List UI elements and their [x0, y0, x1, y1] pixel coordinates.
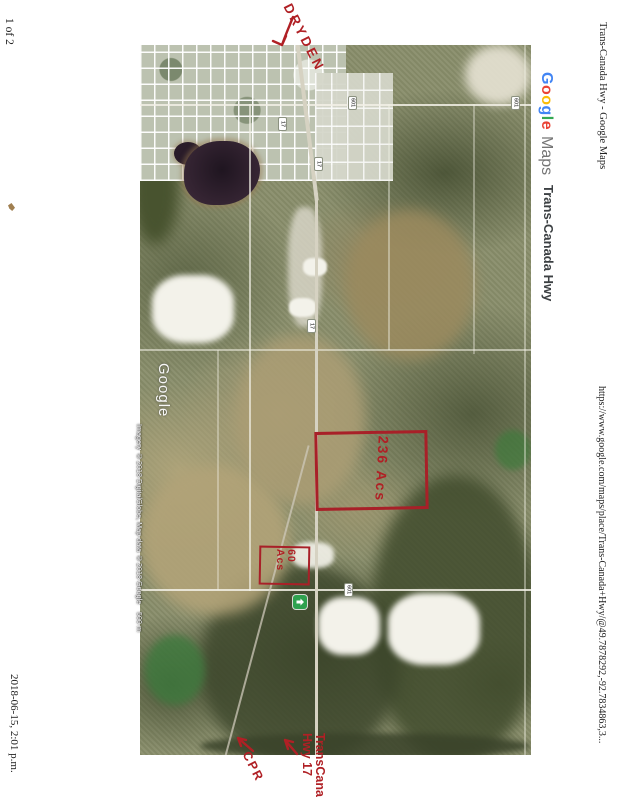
scale-label: 500 m	[135, 612, 144, 632]
road-vertical	[217, 350, 219, 590]
transcanada-handwritten-label: TransCana Hwy 17	[300, 733, 326, 797]
road-vertical	[524, 45, 526, 755]
town-commercial-area	[315, 73, 393, 181]
print-url: https://www.google.com/maps/place/Trans-…	[596, 386, 607, 743]
page-number: 1 of 2	[3, 18, 15, 45]
highway-shield-601: 601	[511, 96, 520, 110]
terrain-marsh-patch	[345, 210, 475, 360]
logo-maps-text: Maps	[537, 136, 555, 175]
parcel-label: 236 Acs	[372, 435, 391, 502]
quarry-patch	[318, 597, 380, 655]
logo-letter: o	[538, 85, 555, 95]
logo-letter: g	[538, 106, 555, 116]
map-attribution: Imagery ©2018 DigitalGlobe, Map data ©20…	[135, 424, 144, 604]
scale-bar	[132, 596, 133, 640]
road-vertical	[473, 104, 475, 354]
road-vertical	[388, 104, 390, 350]
logo-letter: G	[538, 72, 555, 85]
highway-shield-601: 601	[348, 96, 357, 110]
terrain-green-field	[145, 635, 205, 705]
terrain-clearing-patch	[465, 45, 531, 105]
print-header-title: Trans-Canada Hwy - Google Maps	[597, 22, 608, 169]
parcel-label: 60 Acs	[274, 549, 296, 572]
parcel-rectangle-60-acres: 60 Acs	[259, 546, 311, 586]
google-logo-wordmark: Google	[538, 72, 555, 130]
quarry-patch	[388, 593, 480, 665]
parcel-rectangle-236-acres: 236 Acs	[314, 430, 428, 511]
marker-arrow-icon	[295, 597, 305, 607]
printed-page: 1 of 2 Trans-Canada Hwy - Google Maps ht…	[0, 0, 618, 800]
print-timestamp: 2018-06-15, 2:01 p.m.	[8, 674, 20, 773]
highway-shield-601: 601	[344, 583, 353, 597]
place-title: Trans-Canada Hwy	[541, 185, 556, 301]
scan-artifact	[8, 203, 15, 211]
google-watermark: Google	[155, 363, 172, 417]
building-patch	[289, 298, 316, 317]
highway-shield-17: 17	[314, 157, 323, 171]
google-maps-logo: GoogleMaps	[537, 72, 555, 175]
logo-letter: o	[538, 95, 555, 105]
satellite-map: 17 17 17 601 601 601 236 Acs 60 Acs Goog…	[140, 45, 531, 755]
road-vertical	[249, 104, 251, 591]
place-marker-icon	[293, 595, 307, 609]
highway-shield-17: 17	[278, 117, 287, 131]
road-horizontal	[140, 589, 531, 591]
highway-shield-17: 17	[307, 319, 316, 333]
quarry-patch	[152, 275, 234, 343]
logo-letter: e	[538, 121, 555, 130]
